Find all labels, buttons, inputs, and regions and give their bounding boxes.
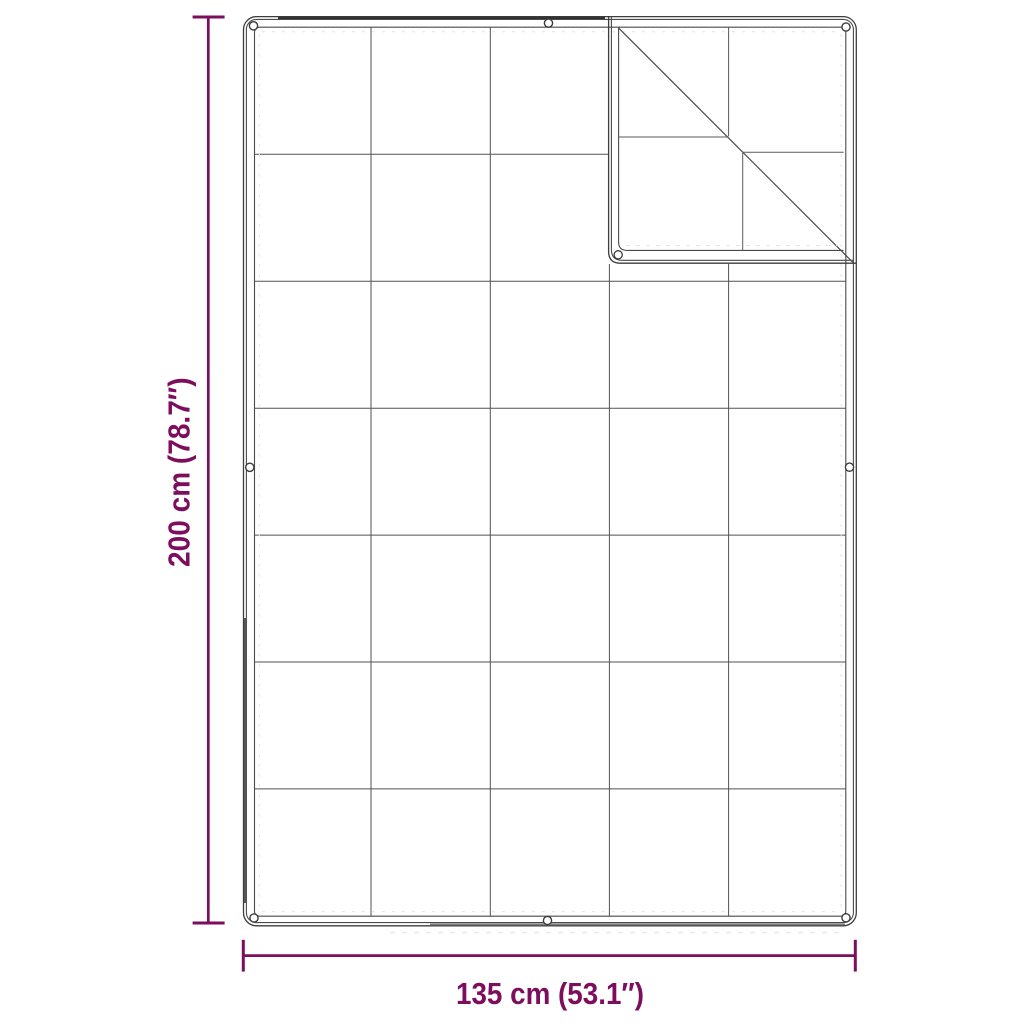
- svg-text:135 cm (53.1″): 135 cm (53.1″): [456, 977, 644, 1011]
- svg-text:200 cm (78.7″): 200 cm (78.7″): [163, 377, 197, 567]
